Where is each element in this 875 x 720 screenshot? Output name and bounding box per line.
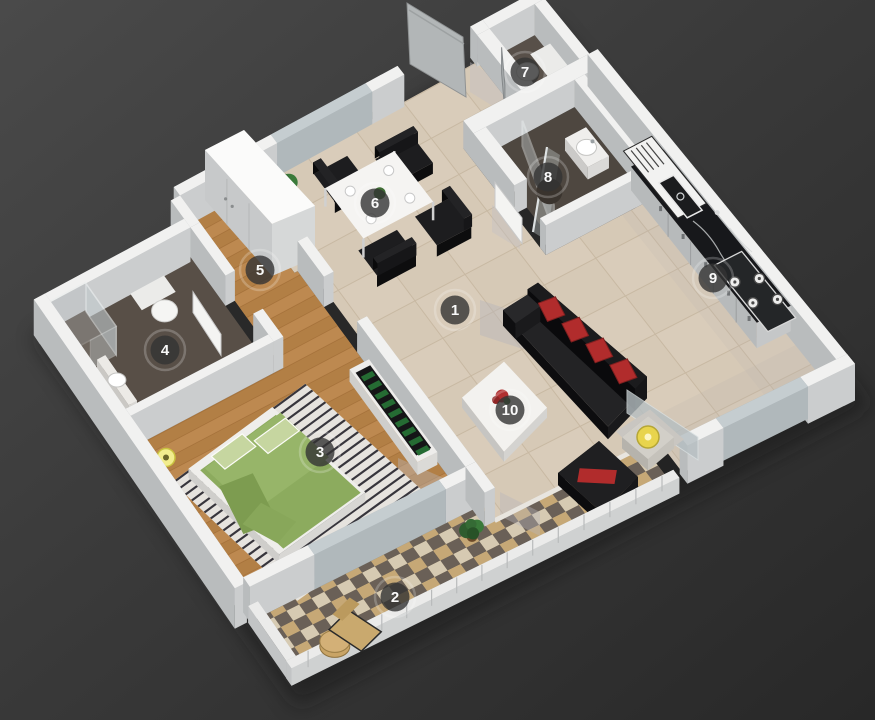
svg-text:4: 4: [161, 342, 170, 359]
svg-text:1: 1: [451, 302, 459, 319]
svg-text:8: 8: [544, 169, 552, 186]
svg-text:6: 6: [371, 195, 379, 212]
svg-text:10: 10: [502, 402, 519, 419]
svg-text:5: 5: [256, 262, 264, 279]
svg-text:9: 9: [709, 270, 717, 287]
svg-text:3: 3: [316, 444, 324, 461]
svg-text:7: 7: [521, 64, 529, 81]
svg-text:2: 2: [391, 589, 399, 606]
